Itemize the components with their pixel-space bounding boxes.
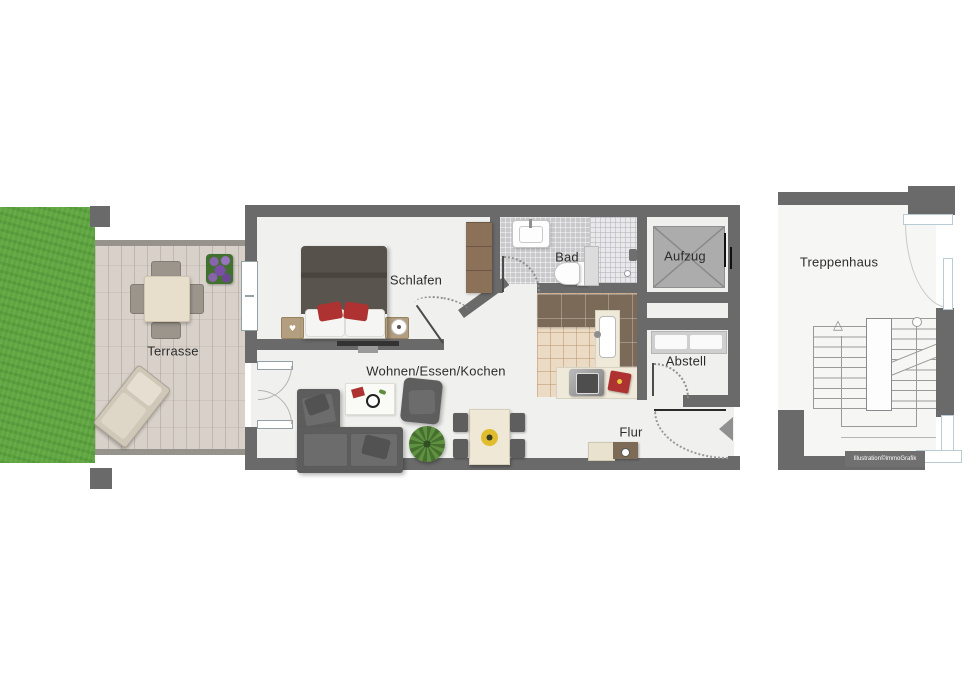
stair-walkline (841, 426, 917, 427)
kitchen-faucet (594, 331, 601, 338)
tv (337, 341, 399, 346)
board-dot (617, 379, 623, 385)
stair-walkline (916, 325, 917, 427)
cutting-board (607, 370, 631, 393)
room-label-bad: Bad (555, 250, 579, 265)
toilet-bowl (554, 262, 580, 285)
floorplan: Terrasse ♥ (0, 0, 962, 680)
wall-segment (936, 308, 954, 417)
dining-chair (510, 413, 525, 432)
terrace-pillar-bottom (90, 468, 112, 489)
sink-faucet (529, 219, 532, 228)
sideboard-knob (621, 448, 630, 457)
wall-segment (728, 456, 740, 470)
elevator-door-mark (724, 233, 726, 267)
room-label-treppenhaus: Treppenhaus (800, 255, 878, 270)
dining-chair (453, 439, 468, 458)
stair-landing-line (841, 437, 936, 438)
shelf-cell (690, 335, 722, 349)
dining-table (469, 409, 510, 465)
sprig (379, 389, 387, 395)
room-label-terrasse: Terrasse (147, 344, 198, 359)
flower-planter (206, 254, 233, 284)
sideboard-left (588, 442, 615, 461)
elevator-door-mark (730, 247, 732, 269)
room-label-aufzug: Aufzug (664, 249, 706, 264)
terrace-edge-top (95, 240, 245, 246)
shower-head (629, 249, 637, 261)
sink-basin (519, 226, 543, 243)
shower-drain (624, 270, 631, 277)
stairs-up-arrow-icon: △ (833, 318, 843, 333)
stairwell-door-frame (903, 214, 953, 225)
wall-segment (728, 205, 740, 403)
storage-shelf (651, 331, 727, 354)
rug (345, 383, 395, 415)
stove (569, 369, 604, 396)
wall-segment (245, 205, 257, 263)
sofa-cushion (303, 433, 348, 467)
wall-segment (908, 186, 955, 215)
terrace-table (144, 276, 190, 322)
bedside-lamp (391, 319, 407, 335)
shower-partition (584, 246, 599, 286)
room-label-abstell: Abstell (666, 354, 706, 369)
bedroom-window (241, 261, 258, 331)
sideboard (588, 442, 638, 459)
room-label-wohnen: Wohnen/Essen/Kochen (366, 364, 505, 379)
magazine (351, 387, 365, 399)
wall-segment (778, 192, 910, 205)
room-label-flur: Flur (619, 425, 642, 440)
room-label-schlafen: Schlafen (390, 273, 442, 288)
watermark-text: Illustration©ImmoGrafik (854, 456, 917, 462)
stove-top (576, 373, 599, 394)
wall-segment (647, 318, 740, 330)
armchair-cushion (408, 390, 435, 415)
coffee-cup (366, 394, 380, 408)
wardrobe (466, 222, 492, 293)
tv-stand (358, 345, 378, 353)
wall-segment (637, 303, 647, 400)
heart-icon: ♥ (289, 324, 296, 333)
dining-chair (510, 439, 525, 458)
wall-segment (683, 395, 740, 407)
potted-plant (409, 426, 445, 462)
accent-pillow (343, 301, 369, 321)
wall-segment (637, 217, 647, 303)
stair-walkline (841, 336, 842, 427)
armchair (400, 377, 443, 425)
entrance-arrow-icon (719, 417, 733, 441)
lamp-center (397, 325, 401, 329)
shelf-cell (655, 335, 687, 349)
wall-segment (245, 427, 257, 470)
stair-landing-spine (866, 318, 892, 411)
bathroom-sink (512, 220, 550, 248)
fruit-bowl (481, 429, 498, 446)
kitchen-sink (599, 316, 616, 358)
watermark-bar: Illustration©ImmoGrafik (845, 451, 925, 467)
terrace-chair (151, 322, 181, 339)
terrace-pillar-top (90, 206, 110, 227)
dining-chair (453, 413, 468, 432)
wall-segment (245, 205, 740, 217)
double-bed (301, 246, 387, 338)
garden-grass (0, 207, 95, 463)
stairwell-door-leaf (943, 258, 953, 310)
wall-segment (637, 292, 740, 303)
terrace-edge-bottom (95, 449, 245, 455)
stair-walkline-end (912, 317, 922, 327)
